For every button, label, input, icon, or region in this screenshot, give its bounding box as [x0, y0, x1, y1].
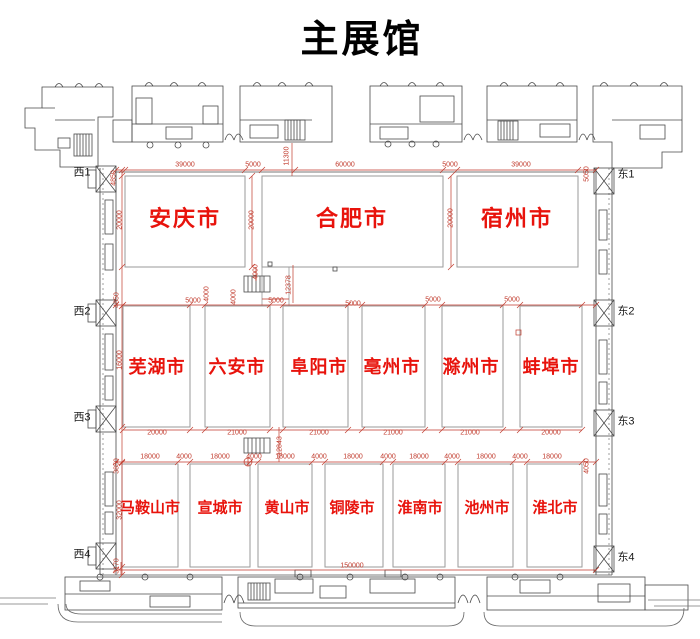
- dim-row3-8: 4000: [380, 454, 396, 461]
- dim-row1-h-mid: 20000: [249, 210, 256, 229]
- hall-label-chizhou: 池州市: [464, 501, 509, 516]
- dim-band1-stair-top: 4000: [253, 264, 260, 280]
- dim-row2-w5: 21000: [460, 430, 479, 437]
- hall-label-suzhou: 宿州市: [481, 208, 553, 230]
- dim-top-39000a: 39000: [175, 162, 194, 169]
- bottom-buildings: [0, 570, 700, 626]
- dim-row3-9: 18000: [409, 454, 428, 461]
- dim-top-5000b: 5000: [442, 162, 458, 169]
- hall-label-huangshan: 黄山市: [264, 501, 309, 516]
- floorplan-drawing: [0, 0, 700, 639]
- dim-row3-13: 18000: [542, 454, 561, 461]
- dim-top-60000: 60000: [335, 162, 354, 169]
- hall-label-chuzhou: 滁州市: [443, 358, 500, 376]
- dim-row2-w6: 20000: [541, 430, 560, 437]
- hall-label-bengbu: 蚌埠市: [523, 358, 580, 376]
- dim-band1-stair-side: 4000: [231, 289, 238, 305]
- dim-row3-14: 4050: [584, 458, 591, 474]
- gate-label-east-2: 东2: [617, 307, 634, 318]
- floorplan-page: 主展馆 安庆市 合肥市 宿州市 芜湖市 六安市 阜阳市 亳州市 滁州市 蚌埠市 …: [0, 0, 700, 639]
- gate-label-west-2: 西2: [73, 307, 90, 318]
- gate-label-east-3: 东3: [617, 417, 634, 428]
- dim-row3-11: 18000: [476, 454, 495, 461]
- hall-label-wuhu: 芜湖市: [129, 358, 186, 376]
- west-corridor: [88, 166, 116, 575]
- dim-row1-h-right: 20000: [448, 208, 455, 227]
- dim-row3-5: 18000: [275, 454, 294, 461]
- east-corridor: [594, 168, 614, 575]
- dim-row3-2: 4000: [176, 454, 192, 461]
- dim-top-39000b: 39000: [511, 162, 530, 169]
- west-gate-doors: [88, 166, 116, 569]
- gate-label-west-4: 西4: [73, 550, 90, 561]
- dim-band1-center-w: 5000: [345, 301, 361, 308]
- dim-band1-gap1-w: 5000: [185, 298, 201, 305]
- dim-left-32000: 32000: [117, 500, 124, 519]
- dim-top-4850: 4850: [111, 170, 118, 186]
- hall-label-bozhou: 亳州市: [364, 358, 421, 376]
- dim-row2-w3: 21000: [309, 430, 328, 437]
- dim-band1-gap4-w: 5000: [425, 297, 441, 304]
- gate-label-east-4: 东4: [617, 553, 634, 564]
- dim-left-3170: 3170: [114, 558, 121, 574]
- gate-label-west-3: 西3: [73, 413, 90, 424]
- hall-label-tongling: 铜陵市: [329, 501, 374, 516]
- dim-top-11300: 11300: [284, 147, 291, 166]
- hall-label-xuancheng: 宣城市: [197, 501, 242, 516]
- hall-label-anqing: 安庆市: [149, 208, 221, 230]
- hall-label-fuyang: 阜阳市: [291, 358, 348, 376]
- hall-label-hefei: 合肥市: [316, 208, 388, 230]
- dim-band1-left-edge: 4850: [114, 292, 121, 308]
- dim-row3-3: 18000: [210, 454, 229, 461]
- hall-label-huaibei: 淮北市: [532, 501, 577, 516]
- dim-row3-4: 4000: [246, 454, 262, 461]
- dim-band1-gap5-w: 5000: [504, 297, 520, 304]
- dim-top-5000a: 5000: [245, 162, 261, 169]
- dim-bottom-total: 150000: [340, 563, 363, 570]
- dim-row2-w2: 21000: [227, 430, 246, 437]
- hall-label-huainan: 淮南市: [397, 501, 442, 516]
- dim-row1-h-left: 20000: [117, 210, 124, 229]
- dim-left-16000: 16000: [117, 350, 124, 369]
- east-gate-doors: [594, 168, 614, 572]
- dim-row2-w1: 20000: [147, 430, 166, 437]
- dim-row3-0: 3850: [114, 458, 121, 474]
- hall-label-maanshan: 马鞍山市: [120, 501, 180, 516]
- dim-band1-gap1-h: 4000: [204, 286, 211, 302]
- dim-band1-stair-w: 5000: [268, 298, 284, 305]
- gate-label-east-1: 东1: [617, 170, 634, 181]
- dim-row2-w4: 21000: [383, 430, 402, 437]
- dim-row3-10: 4000: [444, 454, 460, 461]
- dim-row3-6: 4000: [311, 454, 327, 461]
- dim-row3-1: 18000: [140, 454, 159, 461]
- hall-label-luan: 六安市: [209, 358, 266, 376]
- dim-row3-12: 4000: [512, 454, 528, 461]
- gate-label-west-1: 西1: [73, 168, 90, 179]
- dim-row3-7: 18000: [343, 454, 362, 461]
- top-buildings: [25, 83, 682, 169]
- page-title: 主展馆: [300, 21, 423, 59]
- dim-top-5050: 5050: [584, 166, 591, 182]
- dim-band1-corridor-h: 12378: [286, 275, 293, 294]
